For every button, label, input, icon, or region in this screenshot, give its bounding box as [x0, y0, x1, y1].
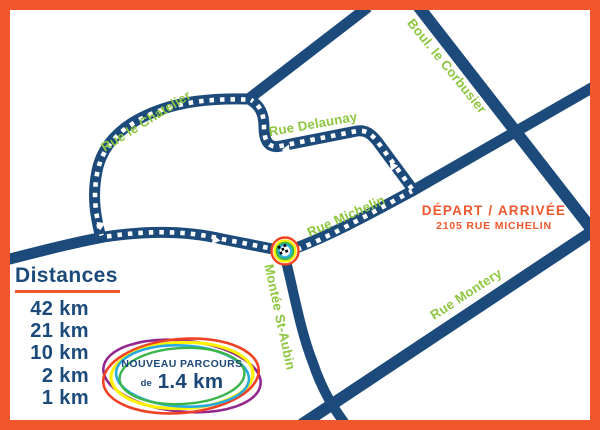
road-rue-le-chatelier	[95, 99, 250, 242]
distances-title: Distances	[15, 264, 120, 288]
course-map: Rue le Chatelier Rue Delaunay Boul. le C…	[0, 0, 600, 430]
distance-item: 2 km	[15, 365, 89, 387]
depart-arrivee-block: DÉPART / ARRIVÉE 2105 RUE MICHELIN	[420, 203, 568, 232]
road-main-west	[0, 232, 288, 262]
distance-item: 1 km	[15, 387, 89, 409]
distance-item: 21 km	[15, 320, 89, 342]
depart-address: 2105 RUE MICHELIN	[420, 220, 568, 232]
distance-item: 10 km	[15, 342, 89, 364]
start-finish-marker	[272, 238, 299, 265]
distances-underline	[15, 290, 120, 293]
distance-item: 42 km	[15, 298, 89, 320]
road-top-connector	[246, 7, 368, 101]
logo-line1: NOUVEAU PARCOURS	[82, 358, 282, 370]
course-dash-chatelier	[95, 99, 245, 235]
nouveau-parcours-logo: NOUVEAU PARCOURS de 1.4 km	[82, 326, 282, 426]
logo-distance-value: 1.4 km	[158, 370, 224, 394]
logo-de: de	[141, 378, 152, 389]
depart-title: DÉPART / ARRIVÉE	[420, 203, 568, 218]
logo-line2: de 1.4 km	[82, 370, 282, 396]
